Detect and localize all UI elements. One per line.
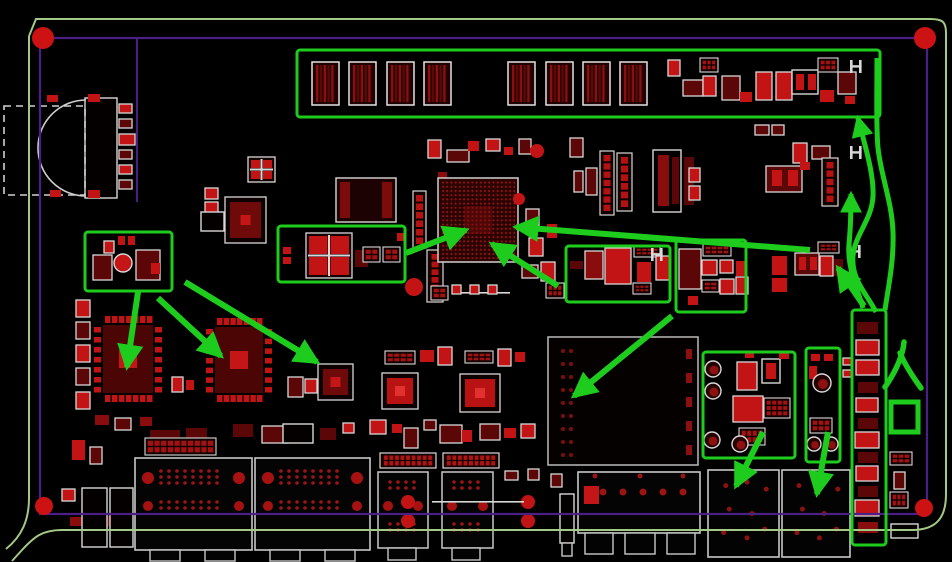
pcb-shape [191, 475, 195, 479]
pcb-shape [400, 456, 404, 460]
pcb-tsop-chip [546, 62, 573, 105]
pcb-shape [265, 339, 272, 345]
pcb-shape [395, 456, 399, 460]
pcb-shape [825, 421, 830, 425]
pcb-shape [447, 456, 451, 460]
pcb-shape [558, 65, 560, 102]
pcb-shape [319, 469, 323, 473]
pcb-grid-pads [818, 58, 838, 72]
pcb-header-vertical [617, 153, 632, 211]
pcb-pad-outlined [205, 188, 218, 199]
pcb-shape [142, 472, 154, 484]
pcb-shape [295, 500, 299, 504]
pcb-shape [458, 456, 462, 460]
pcb-pad-outlined [447, 150, 469, 162]
pcb-shape [147, 316, 153, 323]
pcb-shape [159, 500, 163, 504]
pcb-shape [850, 151, 862, 153]
pcb-shape [395, 386, 405, 396]
pcb-shape [440, 294, 445, 298]
pcb-pad-outlined [76, 300, 90, 317]
pcb-shape [181, 441, 186, 446]
pcb-shape [143, 501, 153, 511]
pcb-shape [396, 480, 400, 484]
pcb-shape [287, 469, 291, 473]
pcb-shape [389, 461, 393, 465]
pcb-header-vertical [600, 151, 614, 215]
pcb-shape [94, 347, 101, 353]
pcb-shape [561, 65, 563, 102]
pcb-shape [558, 286, 561, 290]
pcb-shape [811, 441, 819, 449]
pcb-shape [191, 481, 195, 485]
pcb-shape [469, 461, 473, 465]
pcb-pad [88, 190, 100, 198]
pcb-pad [766, 363, 776, 379]
pcb-shape [523, 65, 525, 102]
pcb-shape [817, 535, 822, 540]
pcb-shape [155, 367, 162, 373]
pcb-shape [303, 506, 307, 510]
pcb-header-dual-row [443, 453, 499, 468]
pcb-pad [740, 92, 752, 102]
pcb-tsop-chip [349, 62, 376, 105]
pcb-pad-outlined [856, 466, 878, 481]
pcb-shape [569, 362, 573, 366]
pcb-shape [591, 65, 593, 102]
pcb-shape [480, 358, 485, 361]
pcb-shape [640, 489, 647, 496]
pcb-shape [604, 163, 611, 169]
pcb-shape [392, 255, 397, 259]
pcb-tsop-chip [620, 62, 647, 105]
pcb-shape [206, 329, 213, 335]
pcb-pad-outlined [574, 171, 583, 192]
pcb-shape [175, 481, 179, 485]
pcb-shape [818, 58, 838, 72]
pcb-shape [224, 318, 230, 325]
pcb-shape [475, 456, 479, 460]
pcb-shape [491, 461, 495, 465]
pcb-shape [224, 395, 230, 402]
pcb-shape [642, 252, 646, 254]
pcb-shape [561, 349, 565, 353]
pcb-shape [821, 245, 825, 247]
pcb-shape [826, 66, 830, 70]
pcb-grid-pads [818, 242, 839, 253]
pcb-pad [186, 380, 194, 390]
pcb-shape [549, 286, 552, 290]
pcb-shape [428, 461, 432, 465]
pcb-shape [628, 65, 630, 102]
pcb-shape [230, 318, 236, 325]
pcb-pad-outlined [428, 140, 441, 158]
pcb-shape [826, 248, 830, 250]
pcb-shape [155, 327, 162, 333]
pcb-shape [335, 500, 339, 504]
pcb-shape [206, 368, 213, 374]
pcb-shape [366, 255, 371, 259]
pcb-shape [465, 351, 493, 363]
pcb-shape [412, 456, 416, 460]
pcb-electrolytic-cap [705, 383, 721, 399]
pcb-shape [902, 501, 905, 506]
pcb-pad-outlined [894, 472, 905, 489]
pcb-pad-outlined [305, 379, 317, 393]
pcb-shape [250, 169, 273, 171]
pcb-pad [688, 296, 698, 305]
pcb-pad-outlined [689, 168, 700, 182]
pcb-pad [820, 90, 834, 102]
pcb-shape [584, 486, 599, 504]
pcb-electrolytic-cap [807, 437, 821, 451]
pcb-shape [640, 289, 643, 291]
pcb-pad-outlined [755, 125, 769, 135]
pcb-shape [645, 286, 648, 288]
pcb-quad-pad [248, 157, 275, 182]
pcb-shape [527, 65, 529, 102]
pcb-shape [620, 489, 627, 496]
pcb-shape [148, 441, 153, 446]
pcb-usb-connector [578, 472, 700, 533]
pcb-pad [233, 424, 253, 437]
pcb-shape [208, 441, 213, 446]
pcb-shape [486, 354, 491, 357]
pcb-pad-outlined [772, 125, 784, 135]
pcb-shape [357, 65, 359, 102]
pcb-connector-tab [205, 550, 235, 561]
pcb-connector-tab [625, 533, 655, 554]
pcb-shape [386, 250, 391, 254]
pcb-pad-outlined [93, 255, 112, 280]
pcb-shape [94, 337, 101, 343]
pcb-shape [443, 65, 445, 102]
pcb-shape [428, 65, 430, 102]
pcb-shape [199, 475, 203, 479]
pcb-pad-outlined [570, 138, 583, 157]
pcb-shape [331, 65, 333, 102]
pcb-pad [858, 382, 878, 393]
pcb-shape [335, 469, 339, 473]
pcb-shape [404, 480, 408, 484]
pcb-shape [335, 481, 339, 485]
pcb-shape [412, 486, 416, 490]
pcb-pad [95, 415, 109, 425]
pcb-shape [215, 475, 219, 479]
pcb-shape [263, 171, 272, 179]
pcb-shape [168, 447, 173, 452]
pcb-shape [159, 475, 163, 479]
pcb-pad-outlined [119, 104, 132, 113]
pcb-shape [206, 358, 213, 364]
pcb-shape [237, 395, 243, 402]
pcb-shape [565, 65, 567, 102]
pcb-shape [767, 411, 771, 415]
pcb-shape [94, 377, 101, 383]
pcb-shape [712, 61, 715, 65]
pcb-shape [352, 501, 362, 511]
pcb-shape [767, 406, 771, 410]
pcb-pad-outlined [424, 420, 436, 430]
pcb-pad-outlined [683, 80, 703, 96]
pcb-shape [710, 388, 719, 397]
pcb-shape [391, 65, 393, 102]
pcb-shape [394, 358, 399, 361]
pcb-connector-tab [270, 550, 300, 561]
pcb-pad-outlined [119, 119, 132, 128]
pcb-shape [201, 441, 206, 446]
pcb-shape [486, 461, 490, 465]
pcb-shape [416, 212, 423, 219]
pcb-pad [811, 354, 820, 361]
pcb-shape [262, 472, 274, 484]
pcb-shape [569, 427, 573, 431]
pcb-shape [797, 483, 802, 488]
pcb-shape [680, 489, 687, 496]
pcb-connector-tab [452, 548, 480, 560]
pcb-shape [199, 500, 203, 504]
pcb-shape [640, 286, 643, 288]
pcb-shape [331, 377, 341, 387]
pcb-pad-outlined [656, 256, 670, 280]
pcb-pad [151, 263, 160, 274]
pcb-shape [686, 373, 692, 383]
pcb-shape [215, 481, 219, 485]
pcb-shape [361, 65, 363, 102]
pcb-shape [155, 377, 162, 383]
pcb-shape [230, 351, 248, 369]
pcb-shape [742, 431, 746, 436]
pcb-pad [772, 170, 782, 186]
pcb-shape [642, 249, 646, 251]
pcb-pad [637, 262, 651, 282]
pcb-qfn-chip [382, 373, 418, 409]
pcb-shape [265, 358, 272, 364]
pcb-shape [368, 65, 370, 102]
pcb-shape [215, 506, 219, 510]
pcb-shape [569, 388, 573, 392]
pcb-shape [183, 475, 187, 479]
pcb-shape [265, 368, 272, 374]
pcb-pad-outlined [470, 285, 479, 294]
pcb-pad-outlined [76, 392, 90, 409]
pcb-shape [416, 238, 423, 245]
pcb-shape [561, 414, 565, 418]
pcb-shape [199, 469, 203, 473]
pcb-shape [215, 469, 219, 473]
pcb-shape [206, 387, 213, 393]
pcb-shape [681, 474, 686, 479]
pcb-shape [154, 447, 159, 452]
pcb-connector-tab [388, 548, 416, 560]
pcb-shape [604, 188, 611, 194]
pcb-pad-outlined [756, 72, 772, 100]
pcb-shape [287, 500, 291, 504]
pcb-shape [890, 452, 912, 465]
pcb-header-dual-row [380, 453, 436, 468]
pcb-shape [201, 447, 206, 452]
pcb-shape [447, 461, 451, 465]
pcb-shape [706, 251, 711, 254]
pcb-pad-outlined [703, 76, 716, 96]
pcb-shape [233, 472, 245, 484]
pcb-pad-outlined [76, 368, 90, 385]
pcb-shape [126, 395, 132, 402]
pcb-shape [234, 501, 244, 511]
pcb-pad-outlined [856, 340, 879, 355]
pcb-shape [279, 475, 283, 479]
pcb-shape [706, 247, 711, 250]
pcb-shape [561, 375, 565, 379]
pcb-pad-outlined [104, 241, 114, 253]
pcb-qfn-chip [318, 364, 353, 400]
pcb-pad [392, 424, 402, 433]
pcb-pad [504, 147, 513, 155]
pcb-shape [604, 155, 611, 161]
pcb-shape [893, 495, 896, 500]
pcb-shape [468, 522, 472, 526]
pcb-shape [645, 289, 648, 291]
pcb-shape [94, 387, 101, 393]
pcb-shape [831, 66, 835, 70]
pcb-shape [265, 387, 272, 393]
pcb-header-vertical [822, 158, 838, 206]
pcb-pad-outlined [793, 143, 807, 163]
pcb-shape [119, 395, 125, 402]
pcb-pad-outlined [119, 180, 132, 189]
pcb-shape [745, 480, 750, 485]
pcb-shape [94, 357, 101, 363]
pcb-shape [463, 456, 467, 460]
pcb-pad [504, 428, 516, 438]
pcb-shape [660, 489, 667, 496]
pcb-shape [407, 354, 412, 357]
pcb-shape [737, 441, 746, 450]
pcb-shape [423, 456, 427, 460]
pcb-pad-outlined [820, 256, 833, 276]
pcb-shape [191, 469, 195, 473]
pcb-shape [813, 426, 818, 430]
pcb-shape [452, 480, 456, 484]
pcb-shape [407, 358, 412, 361]
pcb-shape [436, 65, 438, 102]
pcb-shape [718, 247, 723, 250]
pcb-shape [468, 486, 472, 490]
mounting-hole [35, 497, 53, 515]
pcb-rj45-connector [255, 458, 370, 550]
pcb-shape [112, 316, 118, 323]
pcb-shape [890, 492, 908, 508]
pcb-shape [386, 255, 391, 259]
pcb-pad-outlined [76, 345, 90, 362]
pcb-shape [287, 475, 291, 479]
pcb-shape [635, 65, 637, 102]
pcb-shape [327, 506, 331, 510]
pcb-shape [161, 441, 166, 446]
pcb-shape [335, 506, 339, 510]
pcb-shape [705, 287, 710, 290]
pcb-pad-outlined [605, 248, 631, 284]
pcb-pad [824, 354, 833, 361]
pcb-shape [257, 395, 263, 402]
pcb-shape [217, 395, 223, 402]
pcb-shape [175, 441, 180, 446]
pcb-shape [388, 358, 393, 361]
pcb-shape [353, 65, 355, 102]
pcb-shape [183, 469, 187, 473]
pcb-shape [476, 480, 480, 484]
pcb-pad-outlined [486, 139, 500, 151]
pcb-shape [600, 489, 607, 496]
pcb-shape [460, 522, 464, 526]
pcb-shape [388, 486, 392, 490]
pcb-shape [727, 507, 732, 512]
pcb-shape [327, 475, 331, 479]
pcb-grid-pads [702, 280, 719, 292]
pcb-pad [88, 94, 100, 102]
pcb-shape [458, 461, 462, 465]
pcb-shape [604, 205, 611, 211]
pcb-silk-box [110, 488, 133, 547]
pcb-pad-outlined [702, 260, 717, 275]
pcb-pad [140, 417, 152, 426]
pcb-pad [128, 236, 135, 245]
pcb-shape [207, 469, 211, 473]
pcb-pad-outlined [679, 249, 701, 289]
pcb-shape [709, 437, 718, 446]
pcb-shape [207, 481, 211, 485]
pcb-pad-outlined [370, 420, 386, 434]
pcb-shape [191, 506, 195, 510]
pcb-shape [810, 418, 832, 433]
pcb-shape [295, 475, 299, 479]
pcb-shape [351, 472, 363, 484]
pcb-shape [561, 427, 565, 431]
pcb-shape [480, 461, 484, 465]
pcb-shape [417, 461, 421, 465]
pcb-small-connector [378, 472, 428, 548]
pcb-pad-outlined [438, 347, 452, 365]
pcb-electrolytic-cap [813, 374, 831, 392]
pcb-pad-outlined [119, 150, 132, 159]
pcb-shape [412, 461, 416, 465]
pcb-shape [241, 215, 251, 225]
pcb-shape [167, 481, 171, 485]
pcb-shape [431, 286, 448, 300]
pcb-shape [311, 506, 315, 510]
pcb-shape [723, 483, 728, 488]
pcb-shape [486, 456, 490, 460]
pcb-shape [639, 65, 641, 102]
pcb-pad-outlined [452, 285, 461, 294]
pcb-shape [893, 455, 898, 458]
pcb-shape [474, 358, 479, 361]
pcb-shape [319, 500, 323, 504]
pcb-shape [516, 65, 518, 102]
pcb-shape [175, 469, 179, 473]
pcb-pad [808, 74, 816, 90]
pcb-shape [764, 487, 769, 492]
pcb-shape [469, 456, 473, 460]
pcb-pad-outlined [838, 72, 856, 94]
pcb-shape [324, 65, 326, 102]
pcb-shape [475, 461, 479, 465]
pcb-pad-outlined [585, 251, 603, 279]
pcb-shape [287, 506, 291, 510]
pcb-pad-outlined [529, 238, 543, 256]
pcb-silk-box [201, 212, 224, 231]
pcb-shape [783, 411, 787, 415]
